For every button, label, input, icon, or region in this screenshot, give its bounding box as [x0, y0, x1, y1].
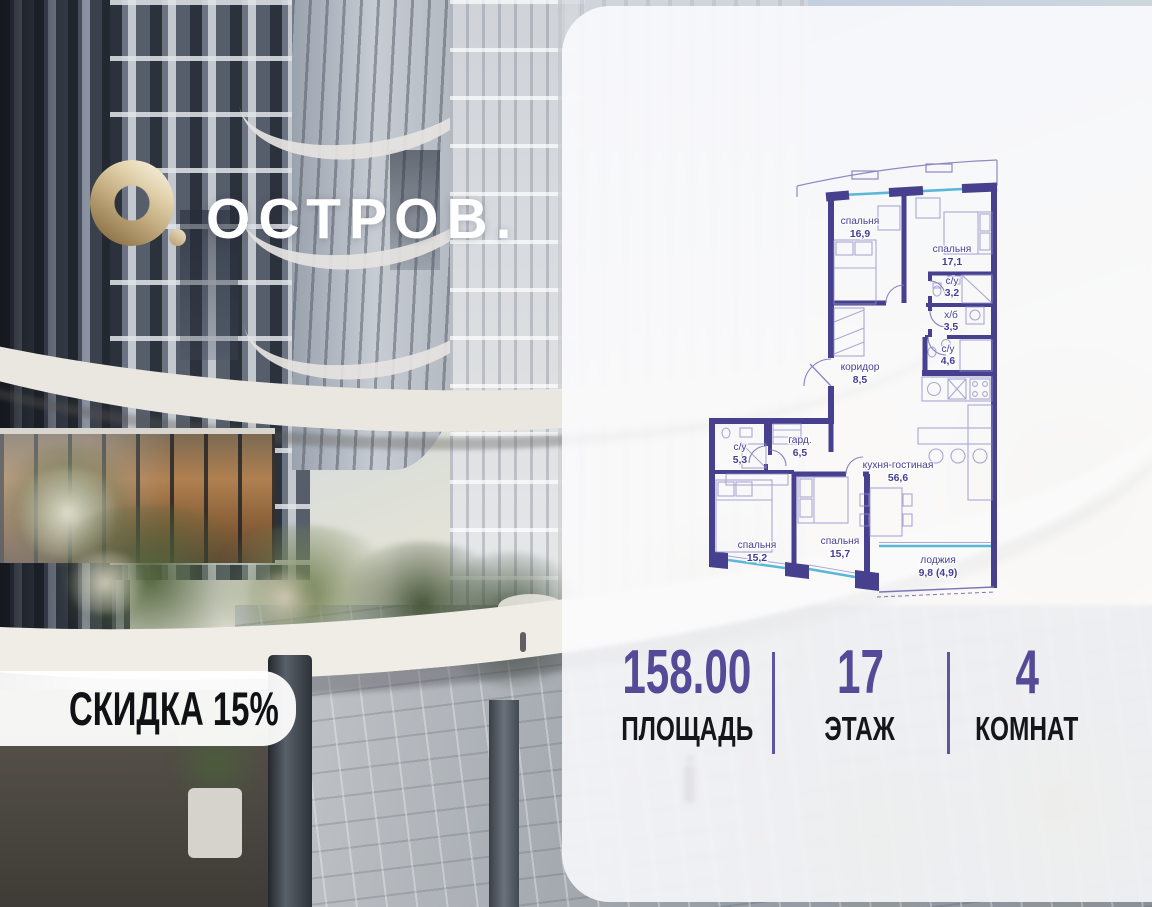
pedestrian: [520, 632, 526, 652]
room-label: спальня: [933, 244, 972, 255]
room-area: 3,5: [944, 322, 959, 333]
rooms-value: 4: [927, 642, 1127, 704]
loggia-edge: [877, 587, 995, 597]
room-labels: спальня 16,9 спальня 17,1 с/у 3,2 х/б 3,…: [733, 216, 972, 579]
room-label: гард.: [788, 435, 811, 446]
room-label: лоджия: [920, 555, 955, 566]
room-label: спальня: [738, 540, 777, 551]
door-arcs: [749, 281, 946, 474]
stat-rooms: 4 КОМНАТ: [927, 642, 1127, 745]
room-area: 6,5: [793, 448, 808, 459]
room-label: спальня: [821, 536, 860, 547]
brand-dot-icon: [169, 229, 186, 246]
brand-name: ОСТРОВ.: [206, 186, 520, 252]
room-area: 15,7: [830, 549, 850, 560]
room-area: 15,2: [747, 553, 767, 564]
support-pillar: [489, 700, 519, 907]
area-value: 158.00: [587, 642, 787, 704]
room-label: с/у: [945, 276, 959, 287]
room-area: 9,8 (4,9): [919, 568, 958, 579]
floorplan-svg: спальня 16,9 спальня 17,1 с/у 3,2 х/б 3,…: [690, 150, 1010, 610]
white-planter: [188, 788, 242, 858]
room-area: 56,6: [888, 473, 908, 484]
room-label: х/б: [944, 309, 958, 321]
room-label: коридор: [841, 362, 880, 373]
room-area: 3,2: [945, 288, 960, 299]
room-label: спальня: [841, 216, 880, 227]
brand-ring-logo-icon: [90, 160, 174, 246]
room-area: 8,5: [853, 375, 868, 386]
discount-badge: СКИДКА 15%: [0, 671, 296, 746]
room-area: 17,1: [942, 257, 962, 268]
stat-area: 158.00 ПЛОЩАДЬ: [587, 642, 787, 745]
discount-badge-label: СКИДКА 15%: [69, 681, 279, 736]
room-label: с/у: [941, 344, 955, 355]
rooms-label: КОМНАТ: [927, 712, 1127, 745]
room-label: кухня-гостиная: [863, 460, 934, 471]
room-label: с/у: [733, 442, 747, 453]
room-area: 4,6: [941, 356, 956, 367]
room-area: 5,3: [733, 455, 748, 466]
room-area: 16,9: [850, 229, 870, 240]
promo-screenshot: ОСТРОВ. СКИДКА 15%: [0, 0, 1152, 907]
area-label: ПЛОЩАДЬ: [587, 712, 787, 745]
